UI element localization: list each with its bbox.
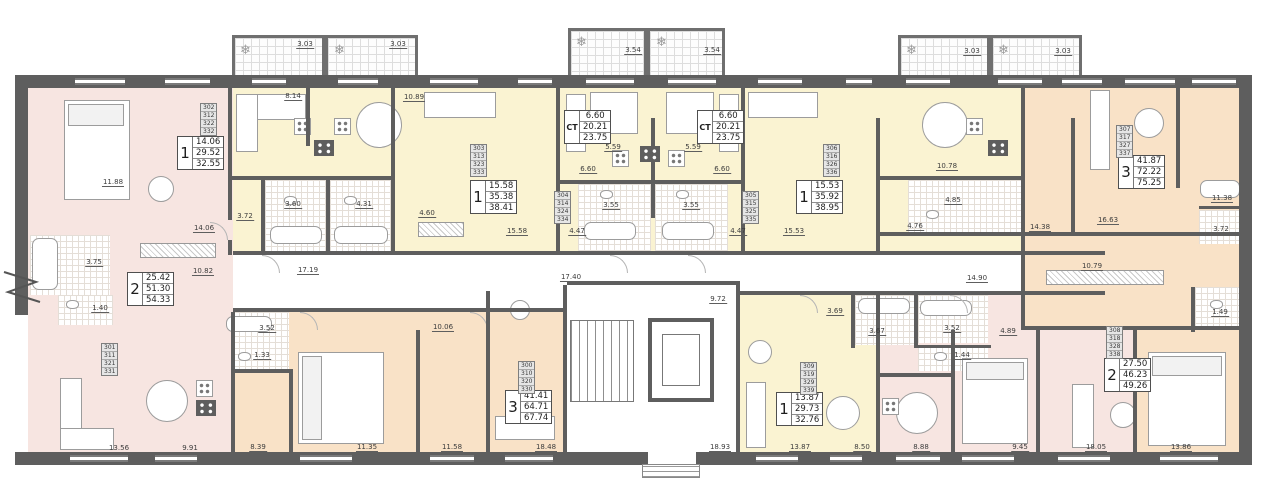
window [830, 455, 862, 462]
wall [416, 330, 420, 452]
dim-label: 3.54 [703, 46, 721, 55]
wall [567, 281, 740, 285]
dim-label: 13.87 [789, 443, 811, 452]
toilet [676, 190, 689, 199]
toilet [934, 352, 947, 361]
wall [560, 180, 743, 184]
table [748, 340, 772, 364]
room-count: 2 [128, 273, 143, 305]
dim-label: 3.55 [682, 201, 700, 210]
table [356, 102, 402, 148]
wall [233, 308, 567, 312]
pillow [966, 362, 1024, 380]
window [1160, 455, 1218, 462]
dim-label: 4.31 [355, 200, 373, 209]
wall [486, 291, 490, 452]
dim-label: 9.72 [709, 295, 727, 304]
window [906, 78, 950, 85]
wall [1239, 75, 1252, 465]
wall [391, 178, 395, 255]
elevator-cab [662, 334, 700, 386]
dim-label: 1.33 [253, 351, 271, 360]
window [252, 78, 286, 85]
dim-label: 5.59 [604, 143, 622, 152]
wall [1199, 206, 1239, 209]
bathtub [270, 226, 322, 244]
toilet [600, 190, 613, 199]
wall [880, 373, 955, 377]
dim-label: 11.58 [441, 443, 463, 452]
stove-icon [882, 398, 899, 415]
dim-label: 5.59 [684, 143, 702, 152]
bathroom-floor [908, 180, 1021, 232]
toilet [238, 352, 251, 361]
wall [740, 291, 1105, 295]
window [430, 455, 474, 462]
dim-label: 4.47 [729, 227, 747, 236]
window [1062, 78, 1102, 85]
unit-info-303: 1 15.5835.3838.41 [470, 180, 517, 214]
stove-icon [196, 380, 213, 397]
dim-label: 11.88 [102, 178, 124, 187]
dim-label: 8.50 [853, 443, 871, 452]
sofa [746, 382, 766, 448]
window [155, 455, 197, 462]
stove-icon [668, 150, 685, 167]
room-count: 2 [1105, 359, 1120, 391]
dim-label: 18.93 [709, 443, 731, 452]
room-count: 1 [178, 137, 193, 169]
wall [1071, 118, 1075, 235]
table [922, 102, 968, 148]
window [586, 78, 634, 85]
dim-label: 3.75 [85, 258, 103, 267]
unit-info-309: 1 13.8729.7332.76 [776, 392, 823, 426]
dim-label: 1.40 [91, 304, 109, 313]
un-numbers-305: 305315325335 [742, 191, 759, 224]
dim-label: 3.55 [602, 201, 620, 210]
wall [851, 291, 855, 348]
dim-label: 3.72 [236, 212, 254, 221]
dim-label: 3.67 [868, 327, 886, 336]
window [668, 78, 716, 85]
snowflake-icon: ❄ [576, 36, 587, 49]
window [1192, 78, 1236, 85]
dim-label: 10.89 [403, 93, 425, 102]
toilet [66, 300, 79, 309]
dim-label: 3.03 [1054, 47, 1072, 56]
dim-label: 6.60 [713, 165, 731, 174]
dim-label: 13.86 [1170, 443, 1192, 452]
unit-info-300: 3 41.4164.7167.74 [505, 390, 552, 424]
snowflake-icon: ❄ [906, 44, 917, 57]
door-arc [688, 255, 706, 273]
un-numbers-300: 300310320330 [518, 361, 535, 394]
closet-rack [1046, 270, 1164, 285]
wall [261, 178, 265, 255]
dim-label: 14.06 [193, 224, 215, 233]
dim-label: 15.53 [783, 227, 805, 236]
unit-info-308: 2 27.5046.2349.26 [1104, 358, 1151, 392]
stove-icon [612, 150, 629, 167]
wall [231, 312, 235, 452]
toilet [926, 210, 939, 219]
wall [1025, 326, 1252, 330]
dim-label: 6.60 [579, 165, 597, 174]
bathroom-floor [578, 184, 651, 251]
sofa [1072, 384, 1094, 448]
vent-shaft [640, 146, 660, 162]
window [962, 455, 1014, 462]
pillow [68, 104, 124, 126]
dim-label: 11.35 [356, 443, 378, 452]
window [70, 455, 128, 462]
dim-label: 3.54 [624, 46, 642, 55]
snowflake-icon: ❄ [656, 36, 667, 49]
closet-rack [418, 222, 464, 237]
room-count: СТ [698, 111, 713, 143]
wall [228, 88, 232, 220]
dim-label: 3.03 [389, 40, 407, 49]
unit-info-304: СТ 6.6020.2123.75 [564, 110, 611, 144]
window [896, 455, 940, 462]
corridor [740, 255, 1023, 291]
wall [326, 178, 330, 255]
un-numbers-301: 301311321331 [101, 343, 118, 376]
dim-label: 13.56 [108, 444, 130, 453]
room-count: 1 [471, 181, 486, 213]
bathtub [334, 226, 388, 244]
dim-label: 3.03 [296, 40, 314, 49]
dim-label: 17.40 [560, 273, 582, 282]
window [1125, 78, 1175, 85]
un-numbers-306: 306316326336 [823, 144, 840, 177]
table [148, 176, 174, 202]
wall [1176, 88, 1180, 188]
sofa [236, 94, 258, 152]
floor-plan: ❄ ❄ ❄ ❄ ❄ ❄ [0, 0, 1280, 481]
wall [916, 345, 991, 348]
window [165, 78, 210, 85]
unit-info-302: 1 14.0629.5232.55 [177, 136, 224, 170]
wall [876, 176, 1025, 180]
un-numbers-308: 308318328338 [1106, 326, 1123, 359]
dim-label: 17.19 [297, 266, 319, 275]
un-numbers-309: 309319329339 [800, 362, 817, 395]
dim-label: 1.44 [953, 351, 971, 360]
window [430, 78, 478, 85]
dim-label: 8.88 [912, 443, 930, 452]
un-numbers-307: 307317327337 [1116, 125, 1133, 158]
dim-label: 8.39 [249, 443, 267, 452]
un-numbers-303: 303313323333 [470, 144, 487, 177]
vent-shaft [196, 400, 216, 416]
bathtub [584, 222, 636, 240]
dim-label: 18.05 [1085, 443, 1107, 452]
room-count: 3 [1119, 156, 1134, 188]
dim-label: 3.03 [963, 47, 981, 56]
bathtub [858, 298, 910, 314]
snowflake-icon: ❄ [998, 44, 1009, 57]
window [758, 78, 802, 85]
window [300, 455, 352, 462]
dim-label: 3.69 [826, 307, 844, 316]
dim-label: 10.78 [936, 162, 958, 171]
door-arc [610, 255, 628, 273]
dim-label: 3.52 [258, 324, 276, 333]
wall [1036, 330, 1040, 452]
dim-label: 10.82 [192, 267, 214, 276]
wall [951, 330, 955, 452]
table [1134, 108, 1164, 138]
dim-label: 4.60 [418, 209, 436, 218]
bathroom-floor [655, 184, 728, 251]
dim-label: 8.14 [284, 92, 302, 101]
un-numbers-304: 304314324334 [554, 191, 571, 224]
table [146, 380, 188, 422]
wall [876, 232, 1025, 236]
dim-label: 1.49 [1211, 308, 1229, 317]
vent-shaft [314, 140, 334, 156]
dim-label: 18.48 [535, 443, 557, 452]
pillow [302, 356, 322, 440]
wall [231, 176, 395, 180]
dim-label: 15.58 [506, 227, 528, 236]
dim-label: 9.91 [181, 444, 199, 453]
wall [289, 373, 293, 452]
sofa [60, 428, 114, 450]
dim-label: 4.89 [999, 327, 1017, 336]
stairs [570, 320, 634, 402]
snowflake-icon: ❄ [334, 44, 345, 57]
entrance-steps [642, 464, 700, 478]
window [998, 78, 1042, 85]
wall [391, 88, 395, 176]
room-count: СТ [565, 111, 580, 143]
dim-label: 9.45 [1011, 443, 1029, 452]
window [505, 455, 553, 462]
un-numbers-302: 302312322332 [200, 103, 217, 136]
dim-label: 11.38 [1211, 194, 1233, 203]
window [75, 78, 125, 85]
room-count: 3 [506, 391, 521, 423]
window [846, 78, 872, 85]
bathtub [662, 222, 714, 240]
wall [563, 285, 567, 465]
vent-shaft [988, 140, 1008, 156]
dim-label: 3.52 [943, 324, 961, 333]
unit-info-307: 3 41.8772.2275.25 [1118, 155, 1165, 189]
table [896, 392, 938, 434]
wall [736, 285, 740, 465]
sofa [1090, 90, 1110, 170]
wall [651, 118, 655, 218]
window [756, 455, 798, 462]
pillow [1152, 356, 1222, 376]
room-count: 1 [797, 181, 812, 213]
snowflake-icon: ❄ [240, 44, 251, 57]
dim-label: 3.72 [1212, 225, 1230, 234]
dim-label: 10.79 [1081, 262, 1103, 271]
dim-label: 16.63 [1097, 216, 1119, 225]
wall [914, 291, 918, 348]
dim-label: 4.47 [568, 227, 586, 236]
break-mark [0, 266, 46, 310]
window [338, 78, 378, 85]
unit-info-305: СТ 6.6020.2123.75 [697, 110, 744, 144]
wall [306, 88, 310, 146]
unit-info-301: 2 25.4251.3054.33 [127, 272, 174, 306]
dim-label: 3.60 [284, 200, 302, 209]
dim-label: 10.06 [432, 323, 454, 332]
dim-label: 14.90 [966, 274, 988, 283]
closet-rack [140, 243, 216, 258]
wall [556, 88, 560, 255]
dim-label: 4.85 [944, 196, 962, 205]
sofa [424, 92, 496, 118]
unit-info-306: 1 15.5335.9238.95 [796, 180, 843, 214]
dim-label: 14.38 [1029, 223, 1051, 232]
wall [233, 251, 1105, 255]
wall [228, 240, 232, 255]
sofa [748, 92, 818, 118]
stove-icon [334, 118, 351, 135]
window [1058, 455, 1110, 462]
table [826, 396, 860, 430]
wall [233, 369, 293, 373]
stove-icon [966, 118, 983, 135]
room-count: 1 [777, 393, 792, 425]
dim-label: 4.76 [906, 222, 924, 231]
window [518, 78, 552, 85]
